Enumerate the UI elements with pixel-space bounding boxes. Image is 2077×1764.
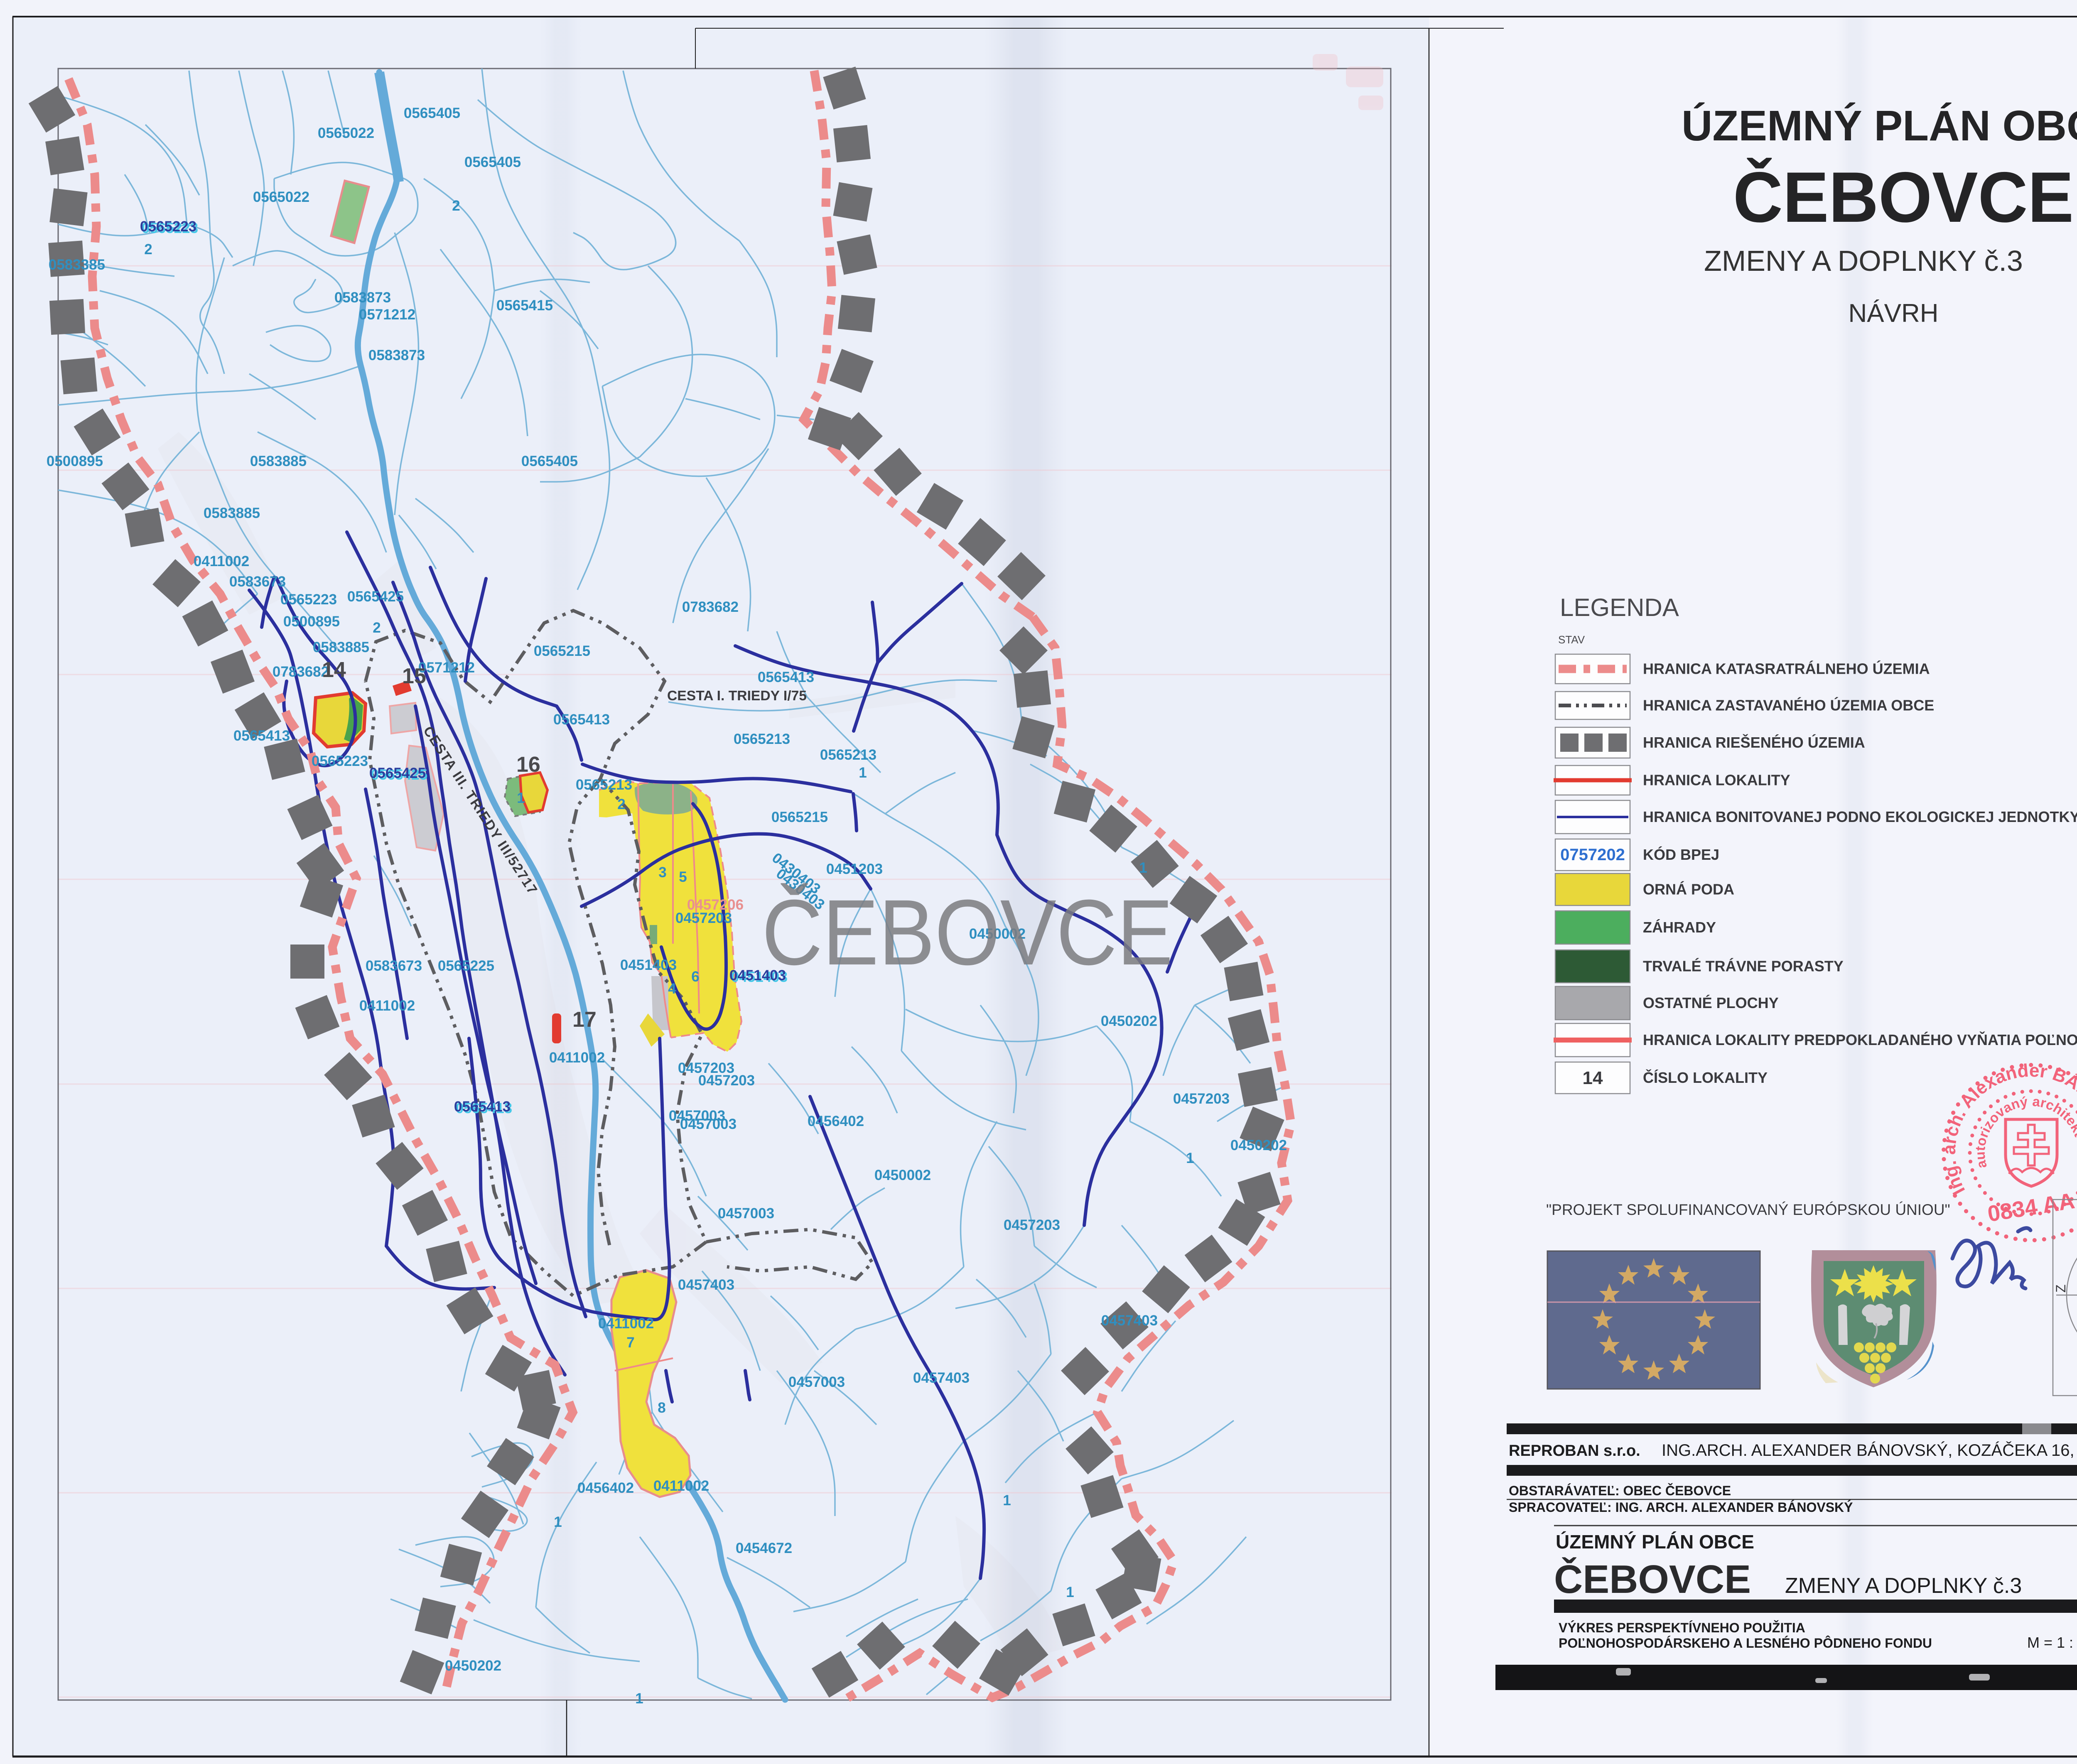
svg-text:0565415: 0565415: [496, 297, 553, 314]
svg-text:15: 15: [402, 664, 426, 688]
svg-text:3: 3: [658, 864, 666, 881]
svg-text:CESTA I. TRIEDY I/75: CESTA I. TRIEDY I/75: [667, 688, 807, 703]
svg-text:4: 4: [668, 981, 676, 997]
svg-text:0450002: 0450002: [874, 1167, 931, 1183]
svg-text:ZMENY A DOPLNKY č.3: ZMENY A DOPLNKY č.3: [1785, 1574, 2022, 1598]
svg-text:0783682: 0783682: [273, 664, 329, 680]
svg-text:0565215: 0565215: [771, 809, 828, 825]
svg-text:ÚZEMNÝ PLÁN OBCE: ÚZEMNÝ PLÁN OBCE: [1682, 102, 2077, 150]
svg-text:0457203: 0457203: [1173, 1091, 1230, 1107]
svg-text:ZMENY A DOPLNKY č.3: ZMENY A DOPLNKY č.3: [1704, 245, 2023, 277]
svg-text:0565022: 0565022: [253, 189, 309, 205]
svg-text:0565022: 0565022: [318, 125, 374, 141]
svg-text:1: 1: [1066, 1584, 1074, 1600]
svg-text:0457003: 0457003: [669, 1108, 725, 1124]
svg-text:0571212: 0571212: [418, 660, 475, 676]
svg-text:ÚZEMNÝ PLÁN OBCE: ÚZEMNÝ PLÁN OBCE: [1556, 1531, 1754, 1553]
svg-text:0783682: 0783682: [682, 599, 739, 615]
svg-text:8: 8: [658, 1400, 665, 1416]
svg-text:REPROBAN s.r.o.: REPROBAN s.r.o.: [1509, 1442, 1640, 1460]
svg-text:1: 1: [1003, 1492, 1011, 1509]
svg-text:HRANICA LOKALITY: HRANICA LOKALITY: [1643, 772, 1790, 789]
svg-text:0457003: 0457003: [788, 1374, 845, 1390]
svg-text:0411002: 0411002: [194, 553, 249, 569]
svg-text:7: 7: [626, 1335, 634, 1351]
svg-text:0456402: 0456402: [808, 1113, 864, 1129]
svg-text:0450202: 0450202: [1230, 1137, 1287, 1153]
svg-text:0565405: 0565405: [521, 453, 578, 469]
svg-text:ČEBOVCE: ČEBOVCE: [1733, 157, 2074, 237]
svg-text:0451203: 0451203: [826, 861, 883, 877]
svg-text:M = 1 : 10 000: M = 1 : 10 000: [2027, 1634, 2077, 1651]
svg-text:0565413: 0565413: [233, 728, 290, 744]
svg-text:ING.ARCH. ALEXANDER BÁNOVSKÝ,: ING.ARCH. ALEXANDER BÁNOVSKÝ, KOZÁČEKA 1…: [1662, 1441, 2077, 1460]
svg-text:0583885: 0583885: [250, 453, 307, 469]
svg-text:LEGENDA: LEGENDA: [1560, 594, 1679, 621]
svg-text:0565213: 0565213: [820, 747, 876, 763]
svg-text:0583885: 0583885: [313, 639, 369, 655]
svg-text:0457003: 0457003: [718, 1205, 774, 1222]
svg-text:0565225: 0565225: [438, 958, 494, 974]
svg-text:0583385: 0583385: [49, 257, 105, 273]
svg-text:ČEBOVCE: ČEBOVCE: [762, 881, 1173, 984]
svg-text:0457403: 0457403: [1101, 1313, 1158, 1329]
svg-text:0450202: 0450202: [445, 1658, 501, 1674]
svg-text:1: 1: [554, 1514, 562, 1530]
svg-text:0500895: 0500895: [283, 613, 340, 630]
svg-text:16: 16: [516, 753, 540, 777]
svg-text:0565215: 0565215: [534, 643, 590, 659]
svg-text:0457206: 0457206: [687, 897, 744, 913]
svg-text:1: 1: [517, 790, 525, 806]
svg-text:0457203: 0457203: [678, 1060, 734, 1076]
svg-text:NÁVRH: NÁVRH: [1848, 299, 1938, 328]
svg-text:17: 17: [572, 1008, 597, 1032]
svg-text:14: 14: [1583, 1068, 1603, 1088]
svg-text:0565223: 0565223: [280, 591, 337, 608]
svg-text:6: 6: [691, 969, 699, 985]
svg-text:2: 2: [452, 198, 460, 214]
svg-text:0411002: 0411002: [598, 1315, 654, 1332]
svg-text:0565405: 0565405: [404, 105, 460, 121]
svg-text:0565413: 0565413: [553, 711, 610, 728]
svg-text:0457403: 0457403: [678, 1277, 734, 1293]
svg-text:STAV: STAV: [1558, 633, 1585, 646]
svg-text:HRANICA LOKALITY PREDPOKLADANÉ: HRANICA LOKALITY PREDPOKLADANÉHO VYŇATIA…: [1643, 1031, 2077, 1048]
svg-text:1: 1: [635, 1690, 643, 1707]
svg-text:POĽNOHOSPODÁRSKEHO A LESNÉHO: POĽNOHOSPODÁRSKEHO A LESNÉHO PÔDNEHO FON…: [1559, 1636, 1932, 1651]
svg-text:0565425: 0565425: [347, 589, 404, 605]
svg-text:1: 1: [1139, 860, 1147, 876]
svg-text:ZÁHRADY: ZÁHRADY: [1643, 919, 1716, 936]
svg-text:HRANICA RIEŠENÉHO ÚZEMIA: HRANICA RIEŠENÉHO ÚZEMIA: [1643, 734, 1865, 751]
svg-text:0411002: 0411002: [359, 998, 415, 1014]
svg-text:TRVALÉ TRÁVNE PORASTY: TRVALÉ TRÁVNE PORASTY: [1643, 958, 1844, 975]
svg-text:2: 2: [617, 796, 625, 812]
svg-text:1: 1: [1186, 1150, 1194, 1166]
svg-text:2: 2: [144, 241, 152, 258]
svg-text:SPRACOVATEĽ: ING. ARCH. ALEXA: SPRACOVATEĽ: ING. ARCH. ALEXANDER BÁNOVS…: [1509, 1500, 1853, 1515]
svg-text:ČEBOVCE: ČEBOVCE: [1554, 1557, 1751, 1602]
svg-text:0565413: 0565413: [758, 669, 814, 685]
svg-text:0565213: 0565213: [734, 731, 790, 747]
svg-text:HRANICA KATASRATRÁLNEHO ÚZEMIA: HRANICA KATASRATRÁLNEHO ÚZEMIA: [1643, 660, 1930, 677]
svg-text:0583673: 0583673: [366, 958, 422, 974]
svg-text:0451403: 0451403: [620, 957, 677, 973]
svg-text:"PROJEKT SPOLUFINANCOVANÝ EURÓ: "PROJEKT SPOLUFINANCOVANÝ EURÓPSKOU ÚNIO…: [1546, 1201, 1950, 1218]
svg-text:0583885: 0583885: [204, 505, 260, 521]
svg-text:0565413: 0565413: [454, 1099, 511, 1115]
svg-text:1: 1: [859, 765, 867, 781]
svg-text:HRANICA BONITOVANEJ PODNO EKOL: HRANICA BONITOVANEJ PODNO EKOLOGICKEJ JE…: [1643, 808, 2077, 825]
svg-text:0456402: 0456402: [577, 1480, 634, 1496]
svg-text:KÓD BPEJ: KÓD BPEJ: [1643, 846, 1719, 863]
svg-text:ČÍSLO LOKALITY: ČÍSLO LOKALITY: [1643, 1069, 1768, 1086]
svg-text:0565223: 0565223: [140, 218, 196, 235]
svg-text:0757202: 0757202: [1560, 846, 1625, 864]
svg-text:0457203: 0457203: [1004, 1217, 1060, 1233]
svg-text:0454672: 0454672: [736, 1540, 792, 1556]
svg-text:OSTATNÉ PLOCHY: OSTATNÉ PLOCHY: [1643, 994, 1779, 1011]
svg-text:5: 5: [679, 869, 687, 885]
svg-text:VÝKRES PERSPEKTÍVNEHO POUŽITIA: VÝKRES PERSPEKTÍVNEHO POUŽITIA: [1559, 1620, 1805, 1635]
svg-text:0583873: 0583873: [334, 290, 391, 306]
svg-text:0565405: 0565405: [464, 154, 521, 170]
svg-text:0450202: 0450202: [1101, 1013, 1157, 1029]
svg-text:0500895: 0500895: [47, 453, 103, 469]
svg-text:0565213: 0565213: [576, 777, 632, 793]
svg-text:0565425: 0565425: [369, 765, 426, 781]
svg-text:ORNÁ PODA: ORNÁ PODA: [1643, 881, 1734, 898]
svg-text:0583873: 0583873: [368, 347, 425, 363]
svg-text:OBSTARÁVATEĽ: OBEC ČEBOVCE: OBSTARÁVATEĽ: OBEC ČEBOVCE: [1509, 1483, 1731, 1498]
svg-text:2: 2: [373, 620, 381, 636]
svg-text:0457403: 0457403: [913, 1370, 970, 1386]
svg-text:0411002: 0411002: [549, 1050, 605, 1066]
svg-text:0565223: 0565223: [312, 753, 368, 769]
svg-text:Z: Z: [2053, 1284, 2068, 1293]
svg-text:14: 14: [322, 658, 346, 682]
svg-text:0583673: 0583673: [229, 574, 286, 590]
svg-text:0411002: 0411002: [653, 1478, 709, 1494]
svg-text:HRANICA ZASTAVANÉHO ÚZEMIA OBC: HRANICA ZASTAVANÉHO ÚZEMIA OBCE: [1643, 697, 1934, 714]
svg-text:0571212: 0571212: [359, 307, 415, 323]
